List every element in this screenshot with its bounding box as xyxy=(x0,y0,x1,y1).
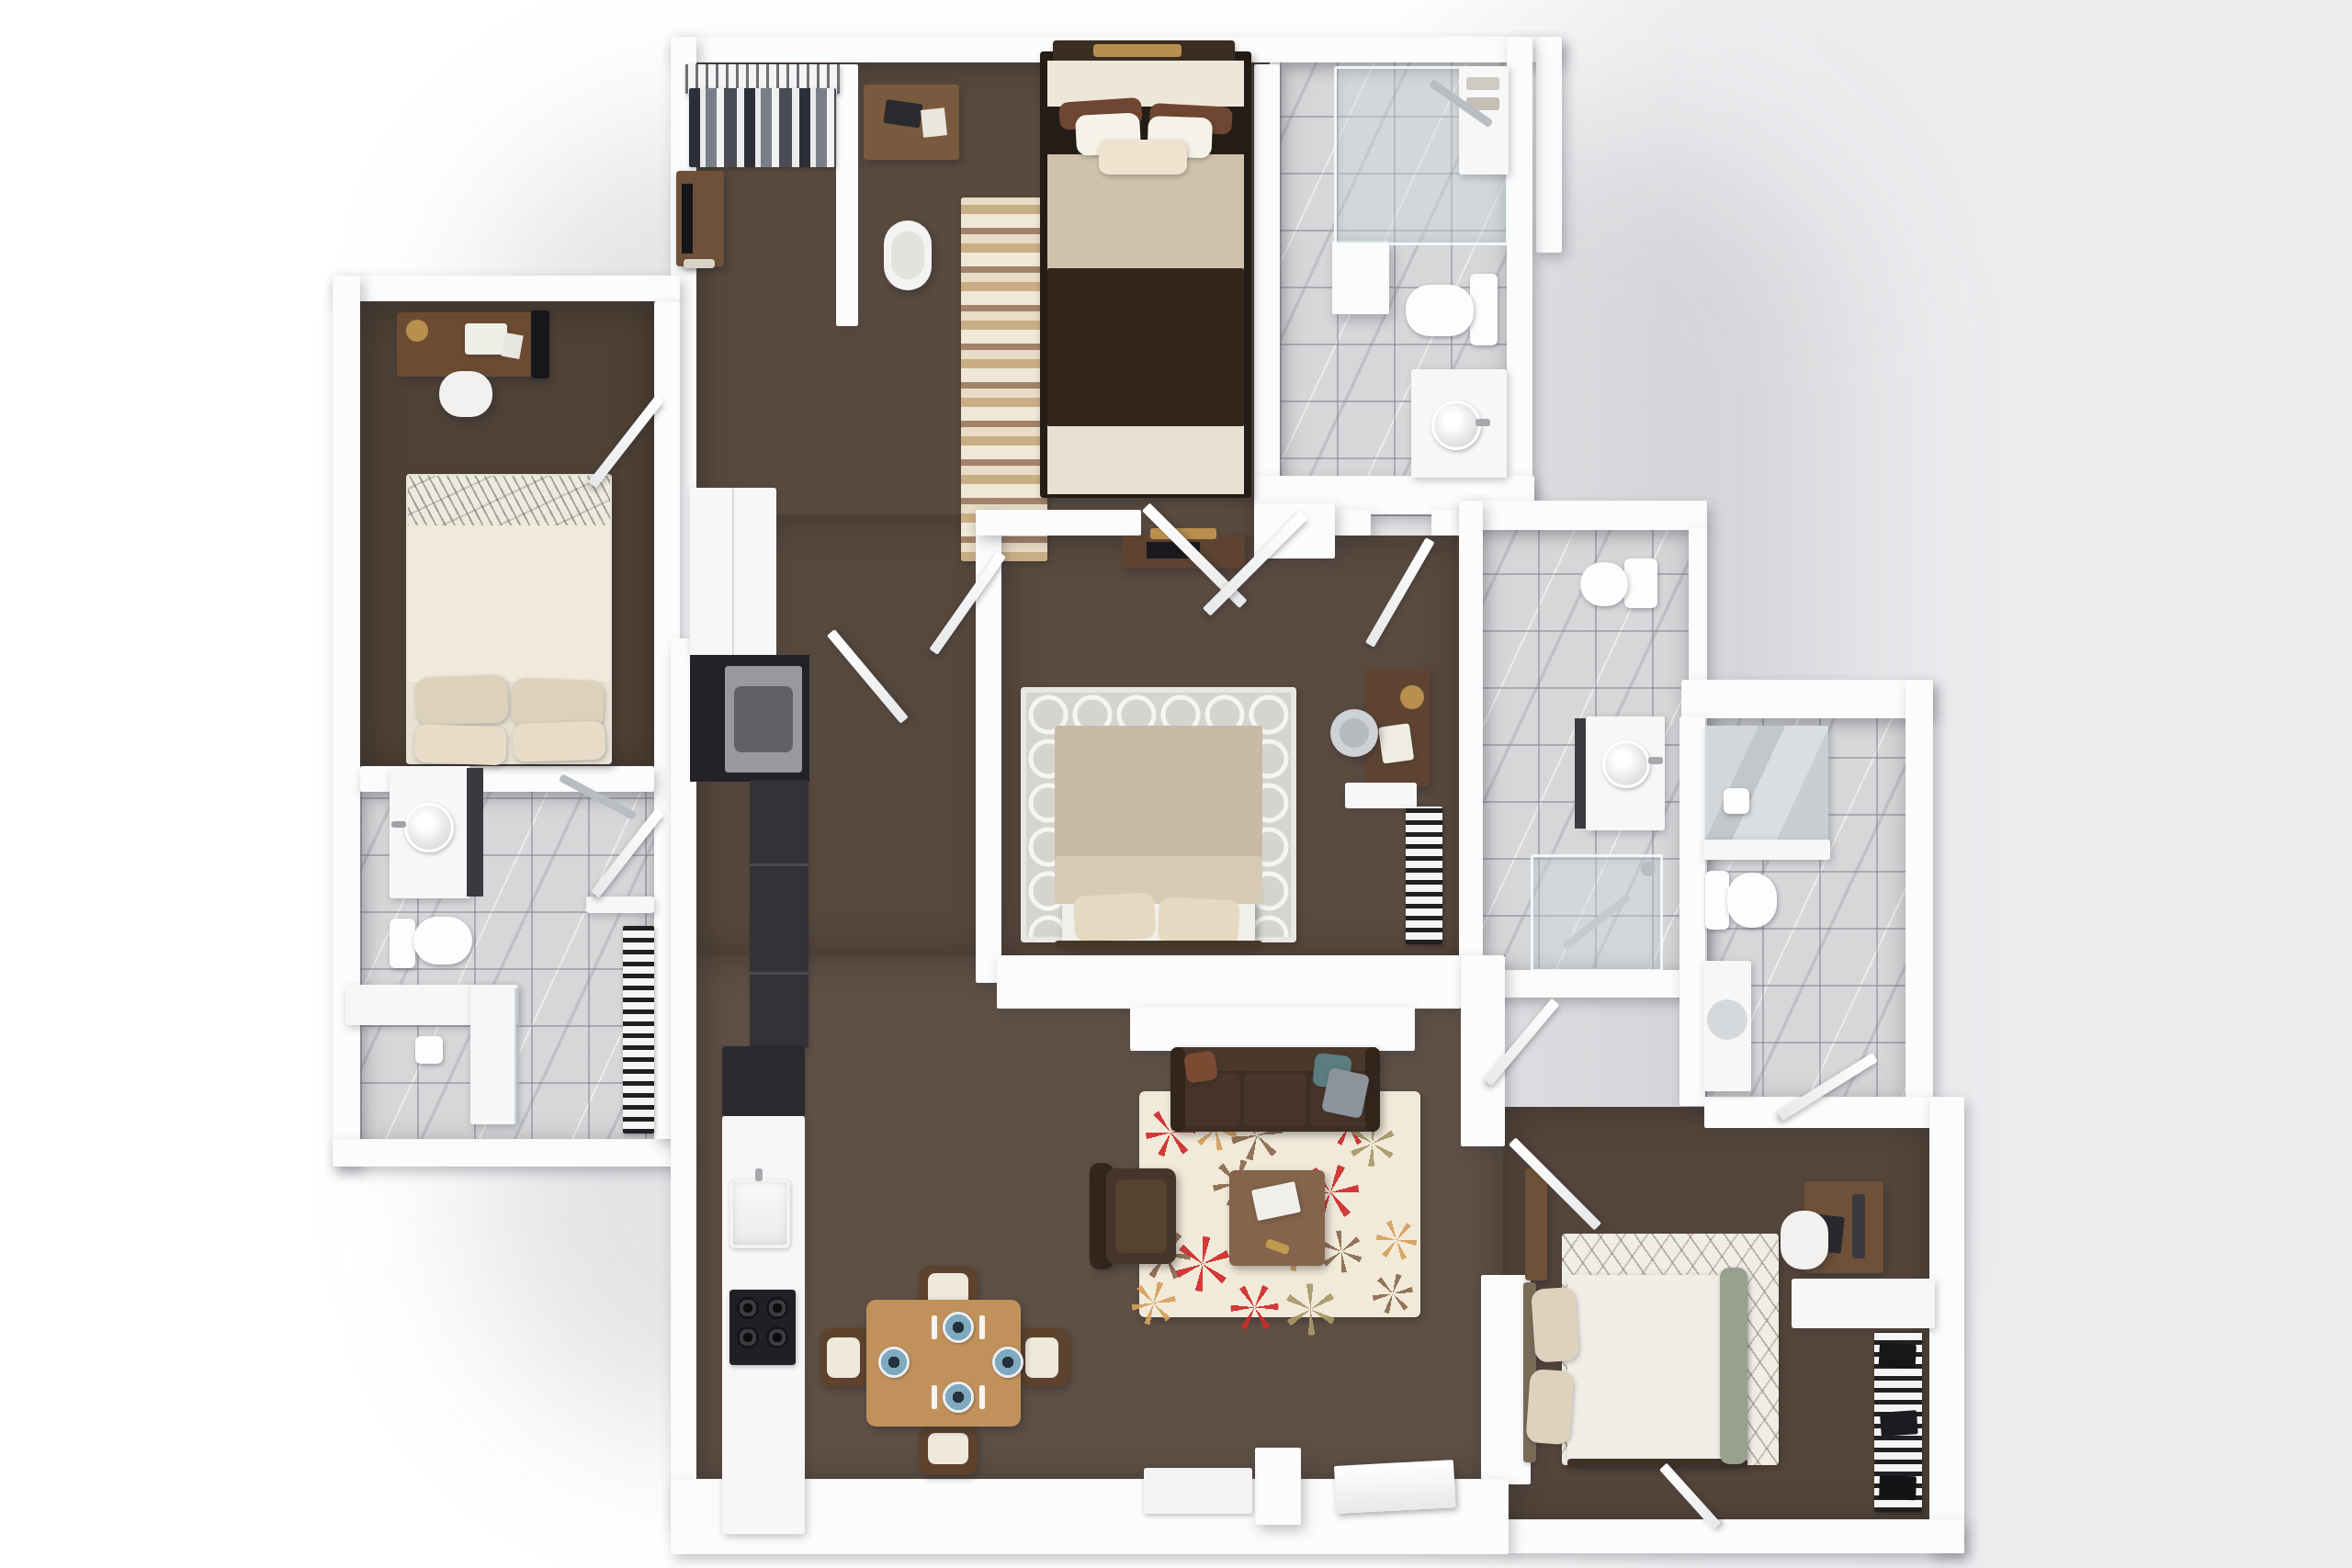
faucet-b xyxy=(391,821,406,828)
shower-b-shelf xyxy=(586,897,654,913)
slat-rack-bedroom-c xyxy=(1406,807,1442,944)
dining-chair-cushion xyxy=(827,1337,860,1378)
shower-b-glass xyxy=(514,988,520,1126)
toilet-d-tank xyxy=(1705,871,1729,930)
toilet-c-bowl xyxy=(1580,562,1628,606)
chair-c-cushion xyxy=(1340,718,1369,748)
wall-left-bottom xyxy=(333,1139,686,1167)
mirror-cabinet-bath-d xyxy=(1705,726,1828,843)
dining-plate xyxy=(943,1312,974,1343)
bed-c-duvet-pleated xyxy=(1055,726,1262,862)
fridge-seam xyxy=(750,972,808,975)
stove-burner xyxy=(766,1326,788,1348)
entry-mat xyxy=(1144,1468,1252,1514)
dining-cutlery xyxy=(932,1385,937,1409)
desk-b-shelf xyxy=(531,310,549,378)
dining-chair-cushion xyxy=(1025,1337,1058,1378)
wall-bath-a-right xyxy=(1507,37,1532,516)
sofa-arm xyxy=(1170,1047,1185,1132)
book-stack xyxy=(1879,1343,1917,1369)
armchair-cushion xyxy=(1115,1179,1167,1253)
dining-plate xyxy=(992,1347,1023,1378)
toilet-b-bowl xyxy=(413,917,472,964)
tv-bedroom-a xyxy=(682,184,693,254)
wall-sofa-back xyxy=(1130,1007,1415,1051)
console-bedroom-d xyxy=(1525,1168,1547,1280)
fridge xyxy=(750,780,808,1048)
laptop-bedroom-a xyxy=(883,99,922,128)
entry-door-panel xyxy=(1334,1460,1456,1514)
runner-rug-bedroom-a xyxy=(961,197,1047,561)
shelf-bath-d xyxy=(1703,840,1830,860)
toilet-a-bowl xyxy=(1406,285,1474,336)
egg-chair-cushion xyxy=(891,231,924,279)
sofa-arm xyxy=(1365,1047,1380,1132)
vanity-b-cabinet xyxy=(467,768,483,897)
washer-door xyxy=(734,686,793,752)
bed-b-pillow xyxy=(414,724,507,765)
bed-a-lumbar-pillow xyxy=(1099,140,1187,175)
bed-b-pillow xyxy=(415,675,509,726)
wall-bath-c-top xyxy=(1459,501,1707,530)
floor-plan-canvas xyxy=(0,0,2352,1568)
shower-c-head xyxy=(1641,862,1656,876)
dining-chair-cushion xyxy=(928,1433,968,1464)
fridge-seam xyxy=(750,863,808,866)
wall-left-outer xyxy=(333,276,360,1167)
bed-d-throw xyxy=(1720,1268,1747,1464)
wall-bath-d-right xyxy=(1905,680,1933,1110)
dining-plate xyxy=(943,1382,974,1413)
desk-b-art xyxy=(465,323,507,355)
sink-b xyxy=(404,803,454,852)
shower-a-towel xyxy=(1466,77,1499,90)
bed-a-blanket xyxy=(1047,268,1244,426)
stove-burner xyxy=(766,1297,788,1319)
desk-d-monitor xyxy=(1852,1194,1865,1258)
ledge-bedroom-c xyxy=(1345,783,1417,808)
bed-a-headboard xyxy=(1047,61,1244,107)
shower-b-mat xyxy=(623,926,654,1134)
toilet-d-bowl xyxy=(1727,873,1777,928)
chair-bedroom-b xyxy=(439,371,492,417)
kitchen-sink xyxy=(729,1179,790,1248)
book-stack xyxy=(1879,1475,1917,1500)
dining-cutlery xyxy=(979,1315,985,1339)
wall-bedroom-c-top-a xyxy=(976,510,1141,536)
washer-bath-d-door xyxy=(1707,999,1747,1040)
wall-bath-c-left xyxy=(1459,501,1483,978)
bed-d-pillow xyxy=(1531,1287,1579,1363)
bed-b-duvet xyxy=(408,525,610,682)
wall-entry-stub xyxy=(1255,1448,1301,1525)
ledge-bedroom-d xyxy=(1792,1279,1935,1328)
paper-bedroom-a xyxy=(921,107,947,138)
faucet-c xyxy=(1648,757,1663,764)
wall-bedroom-a-bath-a xyxy=(1254,64,1280,489)
dining-cutlery xyxy=(979,1385,985,1409)
bed-d-foot-frame xyxy=(1567,1459,1747,1468)
bed-c-pillow xyxy=(1157,897,1239,947)
sofa-seat xyxy=(1244,1073,1306,1126)
wall-bath-d-top xyxy=(1681,680,1931,718)
sink-c xyxy=(1602,740,1650,788)
wall-closet-divider xyxy=(836,64,858,326)
bed-c-foot-rail xyxy=(1055,941,1262,948)
desk-c-papers xyxy=(1378,723,1414,763)
wall-bedroom-c-top-stub xyxy=(1431,510,1461,536)
wall-bedroom-d-bottom xyxy=(1505,1519,1964,1553)
hall-closet-seam xyxy=(732,488,734,657)
bed-d-duvet xyxy=(1567,1275,1744,1466)
wall-topright-outer xyxy=(1536,37,1562,253)
wall-bath-d-bottom xyxy=(1704,1097,1932,1128)
wall-bath-d-left xyxy=(1679,716,1705,1106)
stove-burner xyxy=(737,1326,759,1348)
bed-a-art-gold xyxy=(1093,44,1182,57)
wall-living-right-a xyxy=(1461,955,1505,1146)
bed-c-pillow xyxy=(1073,892,1156,942)
closet-clothes xyxy=(689,88,836,167)
bed-b-pillow xyxy=(513,721,605,762)
book-stack xyxy=(1880,1410,1918,1437)
bath-b-bench-leg xyxy=(470,985,516,1124)
stove-burner xyxy=(737,1297,759,1319)
toilet-c-tank xyxy=(1624,558,1657,608)
toilet-a-tank xyxy=(1470,274,1498,345)
sink-a xyxy=(1431,400,1481,450)
books-bedroom-a xyxy=(684,259,715,268)
wall-left-top xyxy=(333,276,680,301)
desk-b-plant xyxy=(406,320,428,342)
faucet-bath-d xyxy=(1724,788,1749,814)
sofa-seat xyxy=(1178,1073,1240,1126)
sofa-pillow-rust xyxy=(1183,1050,1218,1083)
bed-d-pillow xyxy=(1525,1369,1574,1445)
kitchen-counter-dark xyxy=(722,1046,805,1116)
chair-bedroom-d xyxy=(1781,1211,1828,1269)
wall-bedroom-c-bottom xyxy=(997,955,1461,1009)
desk-c-lamp xyxy=(1400,685,1424,709)
faucet-a xyxy=(1476,419,1490,426)
dining-plate xyxy=(878,1347,910,1378)
shower-b-control xyxy=(415,1036,443,1064)
wall-bath-a-notch xyxy=(1332,241,1389,314)
dining-cutlery xyxy=(932,1315,937,1339)
bed-a-foot-sheet xyxy=(1047,426,1244,494)
kitchen-faucet xyxy=(755,1168,763,1181)
bed-b-throw xyxy=(408,476,610,527)
toilet-b-tank xyxy=(390,919,415,968)
